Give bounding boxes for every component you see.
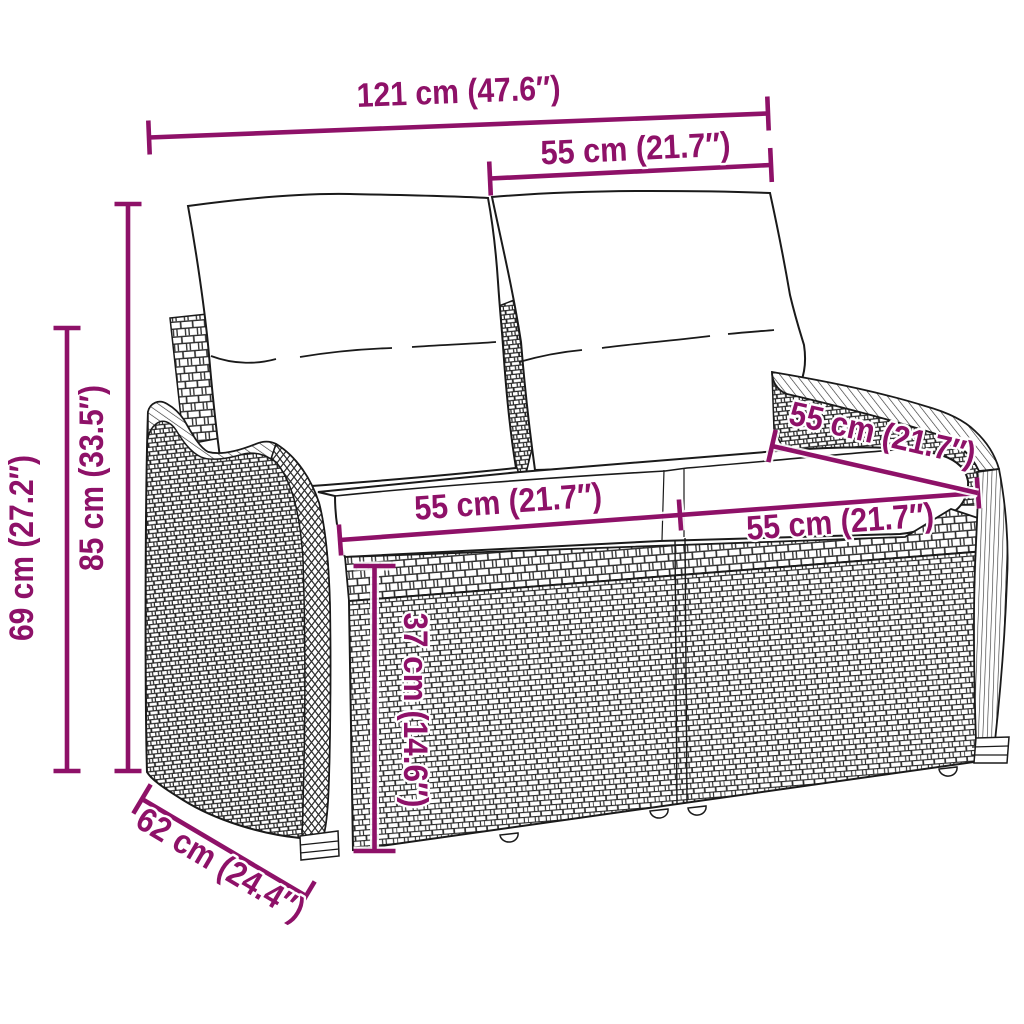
svg-text:121 cm (47.6″): 121 cm (47.6″) <box>356 69 561 115</box>
svg-text:37 cm (14.6″): 37 cm (14.6″) <box>396 613 434 808</box>
svg-text:69 cm (27.2″): 69 cm (27.2″) <box>3 455 41 641</box>
svg-text:85 cm (33.5″): 85 cm (33.5″) <box>73 385 111 571</box>
